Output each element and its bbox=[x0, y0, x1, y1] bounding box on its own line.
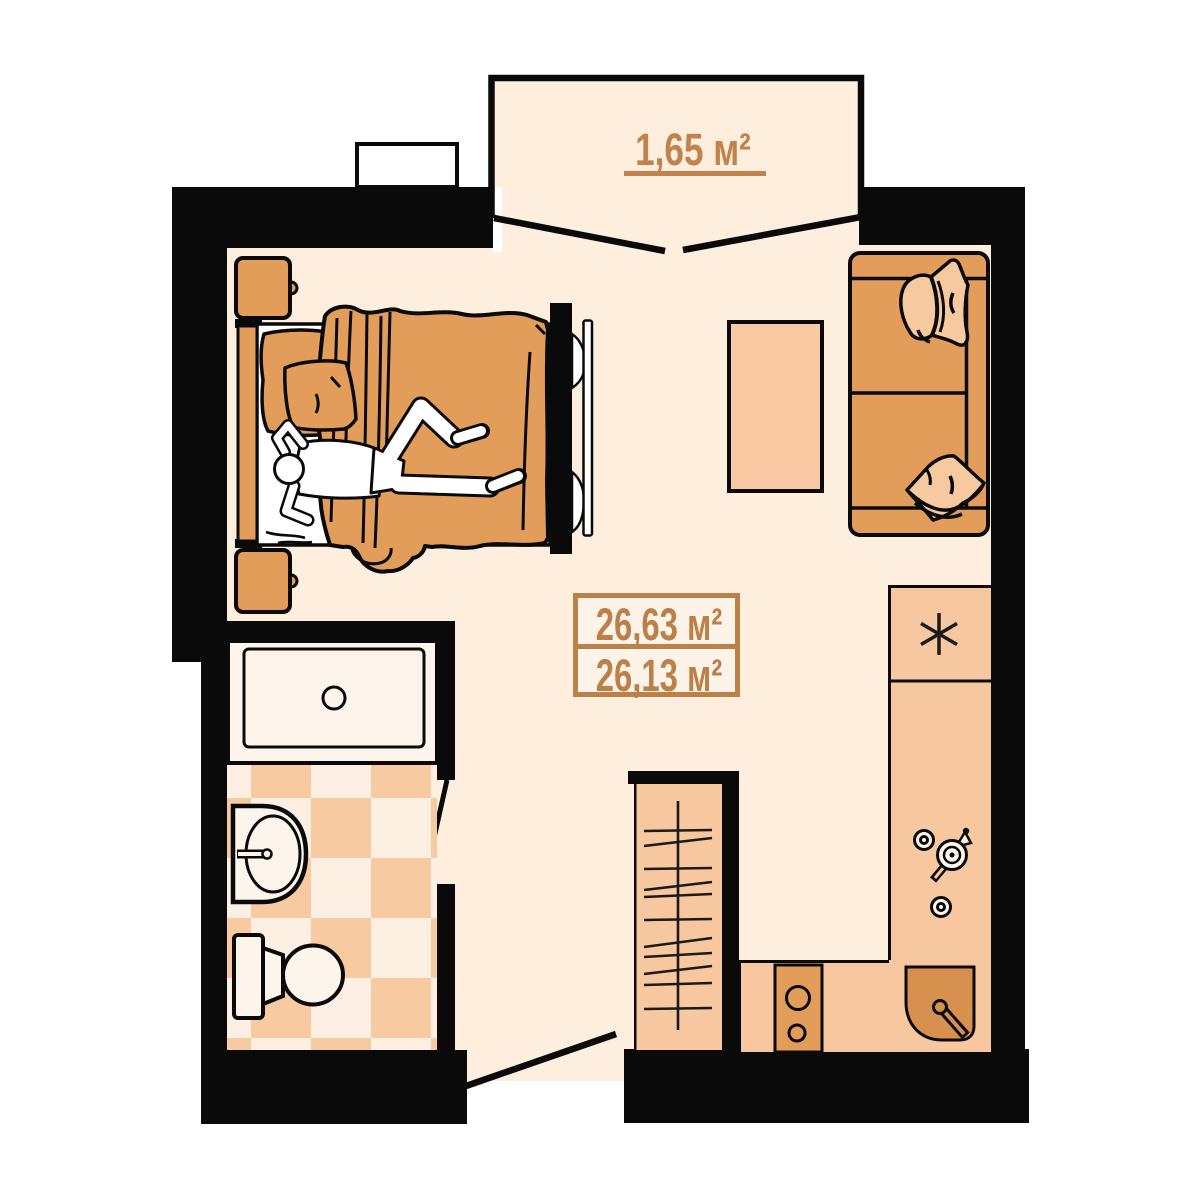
svg-text:26,13 м²: 26,13 м² bbox=[596, 651, 723, 701]
svg-text:1,65 м²: 1,65 м² bbox=[635, 124, 751, 175]
svg-text:26,63 м²: 26,63 м² bbox=[596, 600, 723, 650]
